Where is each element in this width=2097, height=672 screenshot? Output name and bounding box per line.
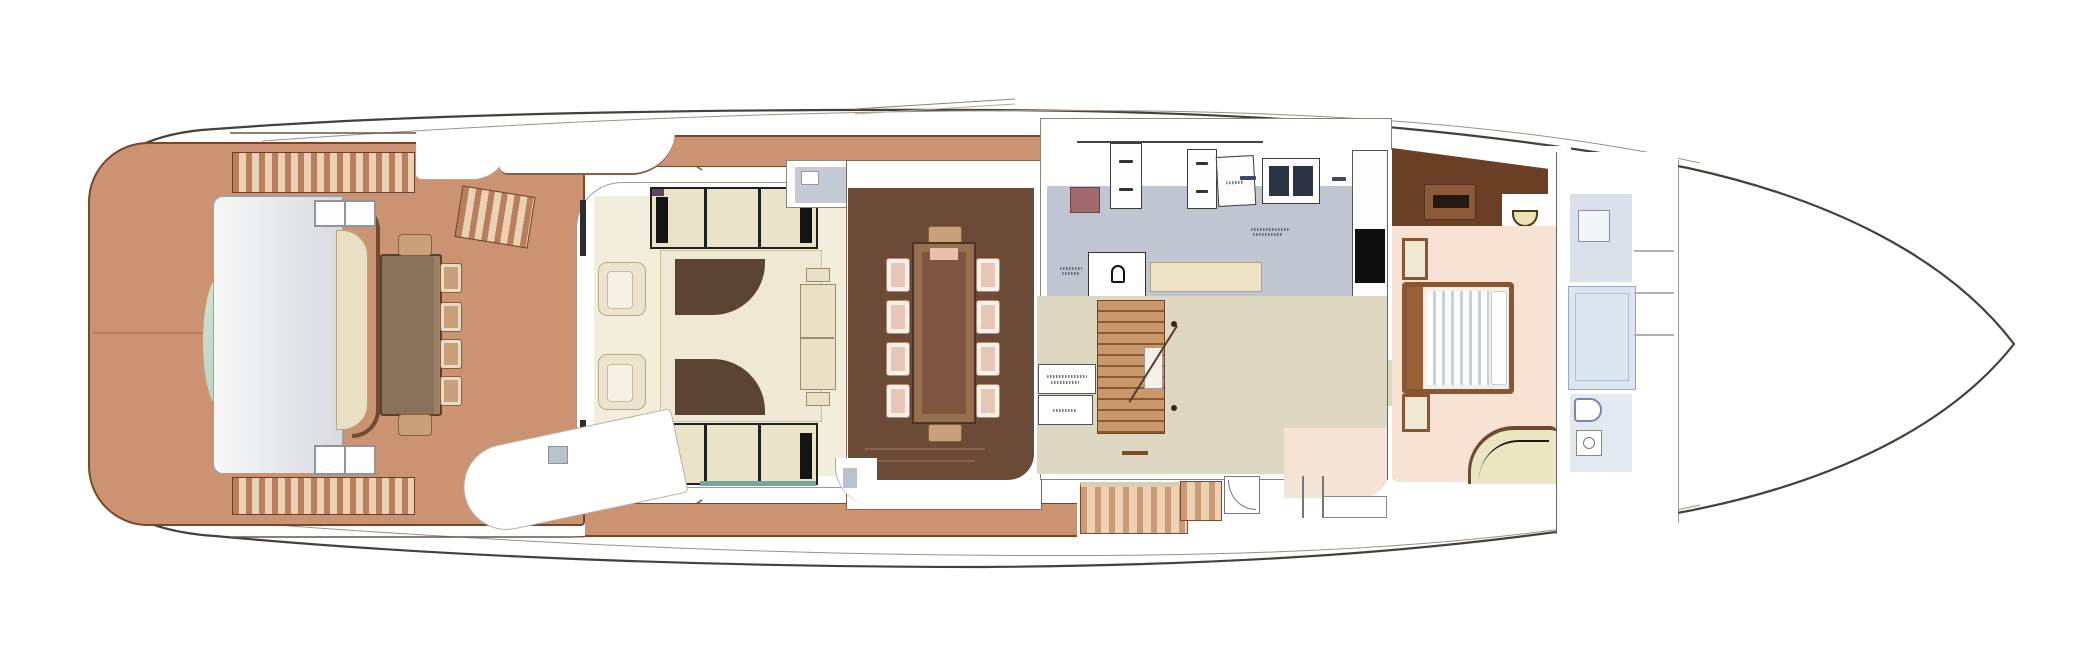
dining-chair: [976, 300, 1000, 334]
galley-cabinet: [1187, 149, 1217, 209]
nightstand: [1402, 238, 1428, 280]
dining-chair: [976, 342, 1000, 376]
sofa-shadow-bottom: [675, 359, 765, 415]
teal-accent-strip: [700, 481, 816, 486]
bath-shelf: [1634, 250, 1674, 252]
dining-chair: [976, 384, 1000, 418]
transom-backrest: [352, 202, 380, 438]
aft-deck-dining-table: [380, 254, 442, 416]
boarding-window: [801, 171, 819, 185]
sideboard-tab: [806, 268, 830, 282]
master-bed: [1402, 282, 1514, 394]
galley-window: [1269, 166, 1289, 196]
basin-bowl: [1583, 437, 1595, 449]
deck-locker: [1323, 496, 1387, 518]
glass-line: [1575, 293, 1629, 381]
bath-shelf: [1634, 334, 1674, 336]
dining-chair: [886, 258, 910, 292]
vanity-panel: [1424, 184, 1476, 220]
tv-panel: [1355, 229, 1385, 283]
illegible-label: [1051, 381, 1079, 384]
sideboard: [800, 284, 836, 390]
threshold: [1122, 451, 1148, 455]
washbasin-alcove: [1502, 194, 1548, 230]
door-swing-arc: [1228, 480, 1256, 510]
galley-cabinet: [1216, 155, 1257, 207]
bath-floor-mid: [1568, 286, 1636, 390]
armchair: [598, 354, 646, 410]
dining-chair-head: [928, 424, 962, 442]
door-dot: [1171, 321, 1177, 327]
dining-chair: [976, 258, 1000, 292]
bath-floor-bot: [1570, 394, 1632, 472]
dining-floor-seam: [865, 448, 985, 450]
transom-side-table-bottom: [314, 445, 376, 475]
door-swing-box: [1224, 476, 1260, 514]
window-post: [800, 433, 812, 479]
drawer-handle: [1196, 162, 1208, 165]
washbasin: [1512, 210, 1538, 227]
armchair: [598, 262, 646, 316]
sideboard-tab: [806, 392, 830, 406]
sofa-shadow-top: [675, 259, 765, 315]
wall-post: [1302, 476, 1304, 518]
bed-duvet: [1427, 291, 1489, 385]
shower-tray: [1578, 210, 1610, 242]
cabinet-top-rail: [1077, 141, 1263, 143]
transom-side-table-top: [314, 200, 376, 227]
walkway-swoosh-top: [500, 131, 675, 175]
dining-chair: [886, 384, 910, 418]
wedge-window: [843, 468, 857, 488]
foyer-peach: [1284, 428, 1390, 498]
deck-steps-bottom: [232, 477, 415, 515]
nightstand: [1402, 394, 1430, 432]
settee-line: [1479, 440, 1549, 480]
bath-shelf: [1634, 292, 1674, 294]
bow-deck: [1690, 170, 2010, 510]
drawer-handle: [1119, 188, 1133, 191]
dining-chair: [886, 342, 910, 376]
vanity-slab: [1433, 195, 1469, 208]
deck-chair: [440, 263, 462, 293]
galley-window-cabinet: [1262, 158, 1320, 204]
table-runner: [930, 248, 958, 260]
dining-table: [912, 242, 976, 424]
dining-chair: [886, 300, 910, 334]
table-divider: [344, 447, 346, 473]
table-divider: [344, 202, 346, 225]
drawer-handle: [1196, 190, 1208, 193]
galley-island-counter: [1150, 262, 1262, 292]
yacht-deck-plan: [0, 0, 2097, 672]
illegible-label: [1226, 181, 1244, 185]
armchair-cushion: [607, 271, 633, 309]
illegible-label: [1062, 272, 1080, 275]
boarding-steps-bottom: [1080, 482, 1188, 534]
illegible-label: [1251, 228, 1289, 231]
small-steps-bottom: [1180, 481, 1222, 521]
day-head: [1088, 252, 1146, 300]
illegible-label: [1053, 409, 1077, 412]
bath-floor-shower: [1570, 194, 1632, 282]
staircase: [1097, 300, 1165, 434]
illegible-label: [1060, 267, 1082, 270]
armchair-cushion: [607, 364, 633, 402]
deck-chair-head-top: [398, 234, 432, 256]
bed-bench: [1407, 287, 1423, 389]
walkway-window: [548, 446, 568, 464]
transom-seating: [213, 196, 343, 474]
basin: [1576, 430, 1602, 456]
deck-chair: [440, 339, 462, 369]
deck-seam: [92, 332, 212, 334]
label-box: [1038, 395, 1093, 425]
galley-cabinet: [1110, 143, 1142, 209]
label-box: [1038, 364, 1096, 394]
cabinet-label: [1332, 177, 1346, 181]
wc: [1574, 398, 1602, 422]
door-dot: [1171, 405, 1177, 411]
window-mullion: [704, 425, 707, 483]
deck-chair: [440, 302, 462, 332]
toilet-icon: [1111, 265, 1125, 283]
mauve-counter: [1070, 187, 1100, 213]
deck-steps-top: [232, 152, 415, 193]
deck-chair-head-bottom: [398, 414, 432, 436]
sideboard-divider: [801, 337, 834, 339]
salon-sofa-group: [660, 250, 822, 422]
illegible-label: [1253, 233, 1283, 236]
galley-window: [1293, 166, 1313, 196]
illegible-label: [1047, 375, 1087, 378]
bed-pillows: [1491, 291, 1507, 385]
window-mullion: [758, 425, 761, 483]
drawer-handle: [1119, 160, 1133, 163]
window-mullion: [758, 189, 761, 247]
wall-post: [1322, 476, 1324, 518]
window-accent: [652, 189, 664, 196]
window-mullion: [704, 189, 707, 247]
window-post: [656, 197, 668, 243]
dining-floor-seam: [865, 460, 975, 462]
deck-chair: [440, 376, 462, 406]
salon-door-frame: [580, 200, 586, 256]
cabinet-label: [1240, 176, 1256, 180]
corridor-fwd: [1284, 296, 1390, 430]
